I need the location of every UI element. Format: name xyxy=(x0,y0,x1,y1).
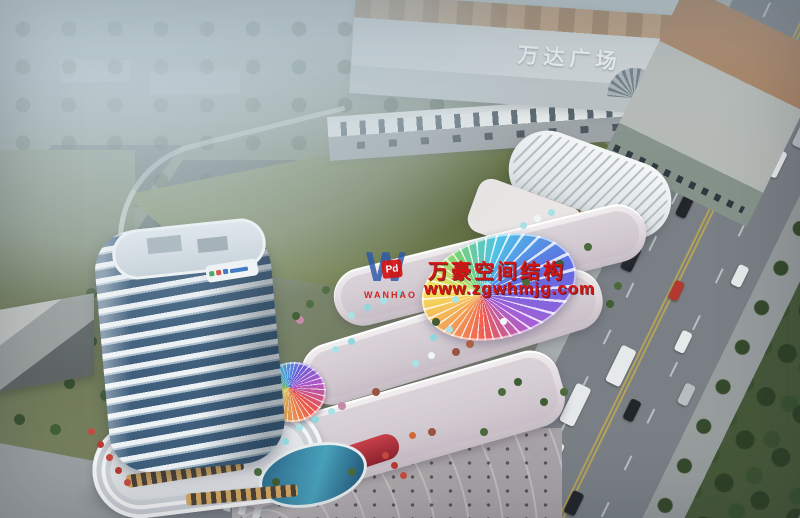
watermark-logo-badge: Pd xyxy=(381,259,403,279)
wanda-plaza-sign: 万达广场 xyxy=(517,39,623,76)
car xyxy=(673,329,693,354)
watermark: W Pd WANHAO 万豪空间结构 www.zgwhmjg.com xyxy=(366,248,606,306)
car xyxy=(563,490,584,517)
logo-chip-green xyxy=(209,271,215,277)
logo-chip-blue xyxy=(223,269,229,275)
watermark-website-url: www.zgwhmjg.com xyxy=(424,279,595,299)
car xyxy=(730,264,750,289)
watermark-logo-caption: WANHAO xyxy=(364,290,412,300)
rooftop-unit xyxy=(147,235,182,254)
car xyxy=(677,382,697,407)
aerial-architectural-rendering: 万达广场 xyxy=(0,0,800,518)
logo-text-bar xyxy=(230,266,248,273)
site-trees xyxy=(0,0,8,8)
rooftop-unit xyxy=(197,236,228,253)
car xyxy=(622,398,642,423)
logo-chip-red xyxy=(216,270,222,276)
car xyxy=(668,279,686,301)
